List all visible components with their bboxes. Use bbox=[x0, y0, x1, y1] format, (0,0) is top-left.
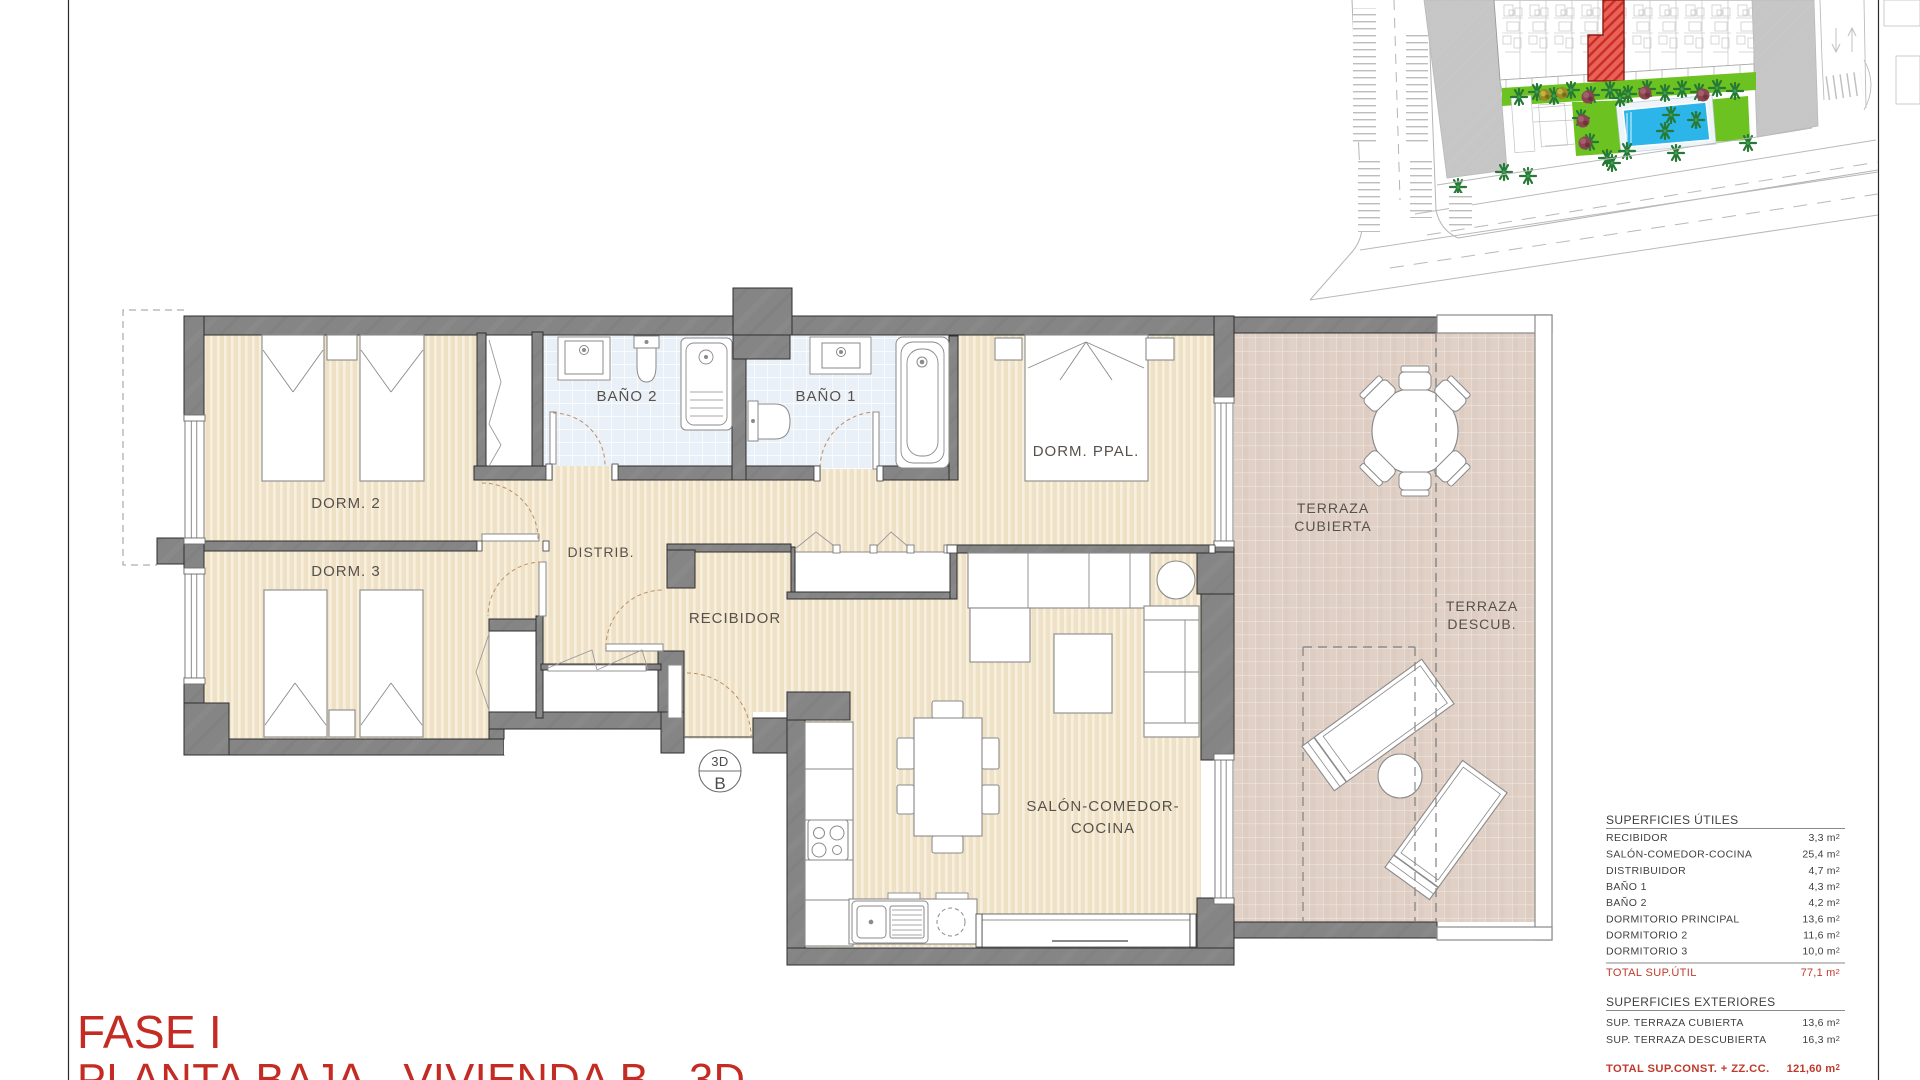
svg-text:BAÑO 1: BAÑO 1 bbox=[1606, 880, 1647, 893]
svg-text:25,4 m2: 25,4 m2 bbox=[1802, 848, 1840, 860]
svg-text:BAÑO 1: BAÑO 1 bbox=[795, 388, 856, 405]
svg-text:DISTRIBUIDOR: DISTRIBUIDOR bbox=[1606, 865, 1686, 877]
svg-text:4,7 m2: 4,7 m2 bbox=[1808, 865, 1840, 877]
svg-text:B: B bbox=[714, 774, 725, 793]
svg-text:SUP. TERRAZA CUBIERTA: SUP. TERRAZA CUBIERTA bbox=[1606, 1017, 1744, 1029]
svg-text:13,6 m2: 13,6 m2 bbox=[1802, 1017, 1840, 1029]
svg-text:4,2 m2: 4,2 m2 bbox=[1808, 897, 1840, 909]
svg-text:77,1 m2: 77,1 m2 bbox=[1801, 967, 1840, 979]
svg-text:DESCUB.: DESCUB. bbox=[1447, 616, 1516, 632]
svg-text:SUPERFICIES ÚTILES: SUPERFICIES ÚTILES bbox=[1606, 812, 1739, 827]
svg-text:SALÓN-COMEDOR-COCINA: SALÓN-COMEDOR-COCINA bbox=[1606, 848, 1752, 861]
svg-text:RECIBIDOR: RECIBIDOR bbox=[1606, 832, 1668, 844]
svg-text:DORM. PPAL.: DORM. PPAL. bbox=[1033, 443, 1140, 460]
svg-text:CUBIERTA: CUBIERTA bbox=[1294, 518, 1372, 534]
svg-text:BAÑO 2: BAÑO 2 bbox=[596, 388, 657, 405]
svg-text:DISTRIB.: DISTRIB. bbox=[567, 544, 634, 560]
svg-text:13,6 m2: 13,6 m2 bbox=[1802, 913, 1840, 925]
svg-text:SUP. TERRAZA DESCUBIERTA: SUP. TERRAZA DESCUBIERTA bbox=[1606, 1034, 1767, 1046]
svg-text:DORMITORIO PRINCIPAL: DORMITORIO PRINCIPAL bbox=[1606, 914, 1740, 926]
svg-text:10,0 m2: 10,0 m2 bbox=[1802, 945, 1840, 957]
svg-text:DORM. 3: DORM. 3 bbox=[311, 563, 381, 580]
svg-text:16,3 m2: 16,3 m2 bbox=[1802, 1034, 1840, 1046]
svg-text:SUPERFICIES EXTERIORES: SUPERFICIES EXTERIORES bbox=[1606, 995, 1776, 1009]
svg-text:FASE I: FASE I bbox=[77, 1006, 222, 1058]
svg-text:11,6 m2: 11,6 m2 bbox=[1803, 929, 1840, 941]
svg-text:BAÑO 2: BAÑO 2 bbox=[1606, 896, 1647, 909]
svg-text:TOTAL SUP.ÚTIL: TOTAL SUP.ÚTIL bbox=[1606, 966, 1697, 979]
svg-text:PLANTA BAJA - VIVIENDA B - 3D: PLANTA BAJA - VIVIENDA B - 3D bbox=[77, 1056, 745, 1080]
svg-text:3D: 3D bbox=[711, 754, 729, 769]
svg-text:TOTAL SUP.CONST. + ZZ.CC.: TOTAL SUP.CONST. + ZZ.CC. bbox=[1606, 1063, 1770, 1075]
svg-text:DORMITORIO 3: DORMITORIO 3 bbox=[1606, 946, 1688, 958]
svg-text:TERRAZA: TERRAZA bbox=[1446, 598, 1518, 614]
svg-text:DORMITORIO 2: DORMITORIO 2 bbox=[1606, 930, 1688, 942]
svg-text:3,3 m2: 3,3 m2 bbox=[1808, 832, 1840, 844]
svg-text:4,3 m2: 4,3 m2 bbox=[1808, 881, 1840, 893]
svg-text:RECIBIDOR: RECIBIDOR bbox=[689, 610, 781, 627]
svg-text:SALÓN-COMEDOR-: SALÓN-COMEDOR- bbox=[1026, 798, 1179, 815]
svg-text:COCINA: COCINA bbox=[1071, 820, 1135, 837]
svg-text:121,60 m2: 121,60 m2 bbox=[1787, 1063, 1841, 1075]
svg-text:DORM. 2: DORM. 2 bbox=[311, 495, 381, 512]
svg-text:TERRAZA: TERRAZA bbox=[1297, 500, 1369, 516]
